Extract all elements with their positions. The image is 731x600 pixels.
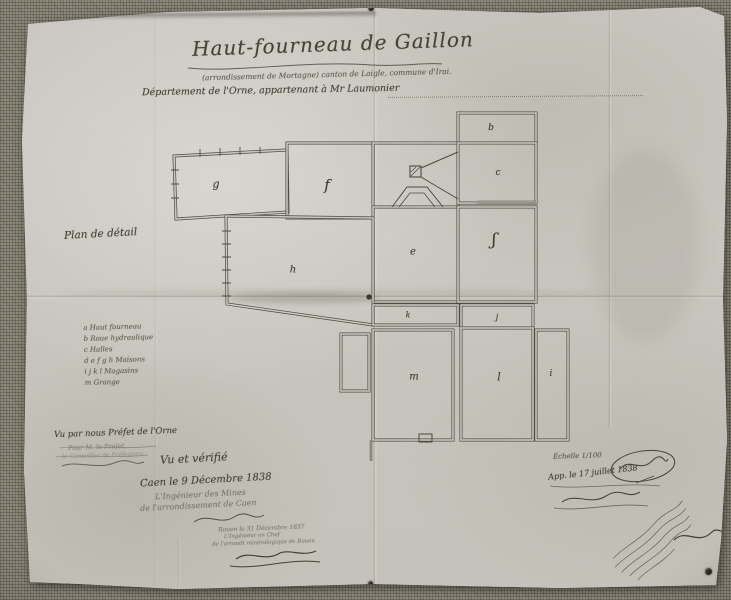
room-label-m: m [409,372,418,383]
hall-h-walls [226,216,373,325]
photograph-of-plan: Haut-fourneau de Gaillon (arrondissement… [0,0,731,600]
room-label-e: e [410,247,416,258]
pushpin-bottom-center [368,581,373,586]
room-g-walls [174,150,288,219]
room-label-h: h [290,265,296,276]
room-m-walls [373,330,453,440]
room-label-g: g [212,178,219,191]
annex-bump-walls [341,334,369,391]
chief-signature-flourish [228,546,323,572]
pushpin-left-lower [13,304,19,310]
room-l-walls [461,328,533,440]
prefect-strike-and-signature [52,442,162,472]
room-label-k: k [406,311,411,320]
room-label-b: b [488,123,494,133]
pushpin-top-left [37,9,41,13]
pushpin-left-upper [13,288,19,294]
window-ticks [171,147,260,296]
pushpin-bottom-right [705,568,712,575]
stub-walls [371,434,432,461]
room-label-l: l [497,371,501,384]
room-label-j: j [496,313,498,322]
pushpin-top-center [368,5,374,11]
room-label-i: i [550,369,553,379]
furnace-room-walls [373,143,458,207]
scale-note: Échelle 1/100 [553,451,602,461]
document-paper: Haut-fourneau de Gaillon (arrondissement… [0,0,731,600]
room-b-walls [458,113,536,143]
room-label-s: ʃ [492,230,497,250]
diagonal-annotation-scribbles [600,500,730,595]
room-s-walls [458,202,536,302]
ink-blot [366,294,371,299]
furnace-hearth-detail [392,152,458,207]
room-label-f: f [324,176,330,194]
band-room-k-walls [373,305,458,325]
paper-wrap: Haut-fourneau de Gaillon (arrondissement… [0,0,731,600]
room-i-walls [536,330,568,440]
room-label-c: c [495,168,500,178]
